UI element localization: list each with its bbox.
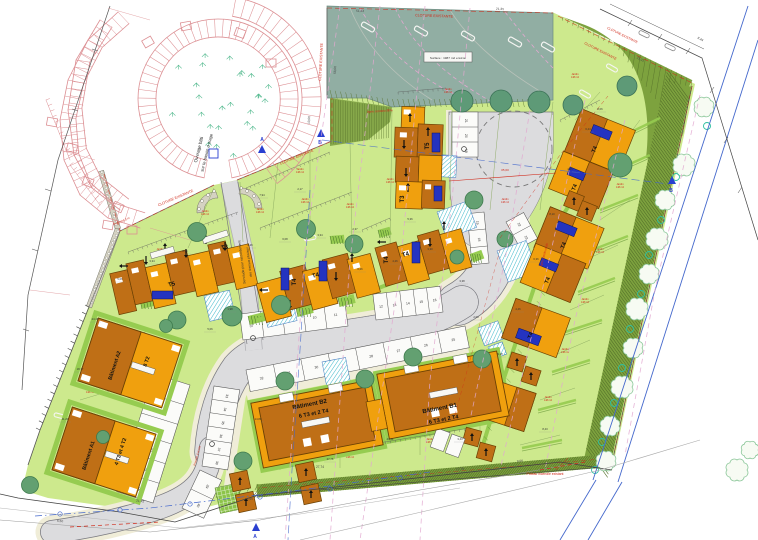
svg-text:A: A: [253, 534, 257, 540]
svg-text:11,20: 11,20: [62, 417, 69, 421]
svg-text:58,00: 58,00: [333, 66, 337, 74]
svg-text:A: A: [260, 137, 264, 143]
svg-text:18: 18: [477, 238, 481, 242]
svg-text:148 m2: 148 m2: [296, 171, 305, 174]
svg-text:11: 11: [334, 313, 338, 317]
svg-text:4,29: 4,29: [247, 243, 253, 247]
svg-text:27,76: 27,76: [327, 457, 334, 461]
svg-text:6,26: 6,26: [182, 249, 188, 253]
svg-text:Poteau incendie existant: Poteau incendie existant: [527, 472, 564, 476]
svg-text:16: 16: [433, 298, 437, 302]
svg-text:12: 12: [379, 304, 383, 308]
svg-text:B: B: [669, 188, 673, 194]
svg-text:3,34: 3,34: [317, 233, 323, 237]
svg-text:6,26: 6,26: [357, 267, 363, 271]
svg-text:148 m2: 148 m2: [201, 213, 210, 216]
svg-text:3,43: 3,43: [457, 437, 463, 441]
svg-text:17,78: 17,78: [456, 467, 464, 472]
svg-text:7,94: 7,94: [259, 193, 265, 197]
svg-text:9,18: 9,18: [497, 352, 503, 356]
svg-text:2,03: 2,03: [473, 315, 479, 319]
svg-text:3,38: 3,38: [459, 279, 465, 283]
svg-text:6,44: 6,44: [585, 127, 591, 131]
svg-text:1,96: 1,96: [247, 497, 254, 502]
svg-text:148 m2: 148 m2: [444, 91, 453, 94]
svg-text:Surface : 1987 m2 environ: Surface : 1987 m2 environ: [430, 56, 467, 60]
svg-text:148 m2: 148 m2: [596, 251, 605, 254]
svg-text:148 m2: 148 m2: [386, 181, 395, 184]
svg-text:148 m2: 148 m2: [581, 301, 590, 304]
svg-text:10: 10: [313, 315, 317, 319]
svg-text:T4: T4: [384, 256, 390, 264]
svg-text:14,80: 14,80: [255, 417, 262, 421]
svg-text:148 m2: 148 m2: [501, 201, 510, 204]
svg-text:T5: T5: [425, 142, 431, 150]
svg-text:5,06: 5,06: [207, 327, 213, 331]
svg-text:9,06: 9,06: [517, 459, 524, 463]
svg-text:24,40: 24,40: [92, 317, 99, 321]
svg-text:10,00: 10,00: [307, 116, 311, 124]
svg-text:36: 36: [219, 434, 224, 438]
svg-text:21: 21: [464, 119, 468, 123]
svg-text:6,50: 6,50: [57, 519, 64, 524]
svg-text:3,34: 3,34: [149, 259, 155, 263]
svg-text:2,17: 2,17: [297, 187, 303, 191]
svg-text:19: 19: [475, 221, 479, 225]
svg-text:1,98: 1,98: [227, 307, 233, 311]
svg-text:T3: T3: [400, 195, 406, 203]
svg-text:6,36: 6,36: [533, 257, 539, 261]
svg-text:4,26: 4,26: [392, 259, 398, 263]
svg-text:38: 38: [215, 461, 220, 465]
svg-text:14: 14: [406, 301, 410, 305]
svg-text:148 m2: 148 m2: [346, 206, 355, 209]
svg-text:43,34: 43,34: [387, 437, 394, 441]
svg-text:148 m2: 148 m2: [301, 201, 310, 204]
svg-text:8,10: 8,10: [549, 212, 555, 216]
svg-text:51,44: 51,44: [356, 9, 364, 13]
svg-text:8,43: 8,43: [542, 427, 548, 431]
svg-text:35: 35: [221, 421, 226, 425]
svg-text:37: 37: [217, 447, 222, 451]
svg-text:5,36: 5,36: [407, 217, 413, 221]
svg-text:15: 15: [419, 300, 423, 304]
svg-text:5,06: 5,06: [117, 277, 123, 281]
svg-text:05,60: 05,60: [501, 168, 509, 172]
svg-text:33: 33: [225, 394, 230, 398]
svg-text:27,74: 27,74: [316, 465, 324, 469]
svg-text:8,06: 8,06: [597, 107, 603, 111]
svg-text:4,46: 4,46: [515, 307, 521, 311]
svg-text:148 m2: 148 m2: [544, 399, 553, 402]
svg-text:6,08: 6,08: [282, 237, 288, 241]
svg-text:148 m2: 148 m2: [571, 76, 580, 79]
svg-text:21,35: 21,35: [496, 7, 504, 11]
svg-text:2,37: 2,37: [352, 227, 358, 231]
svg-text:148 m2: 148 m2: [346, 456, 355, 459]
svg-text:3,30: 3,30: [427, 247, 433, 251]
svg-text:148 m2: 148 m2: [256, 211, 265, 214]
svg-text:T4: T4: [292, 278, 298, 286]
svg-text:34: 34: [223, 407, 228, 411]
svg-text:148 m2: 148 m2: [616, 186, 625, 189]
svg-text:20: 20: [464, 134, 468, 138]
svg-text:18,17: 18,17: [77, 367, 84, 371]
svg-text:4,55: 4,55: [567, 167, 573, 171]
